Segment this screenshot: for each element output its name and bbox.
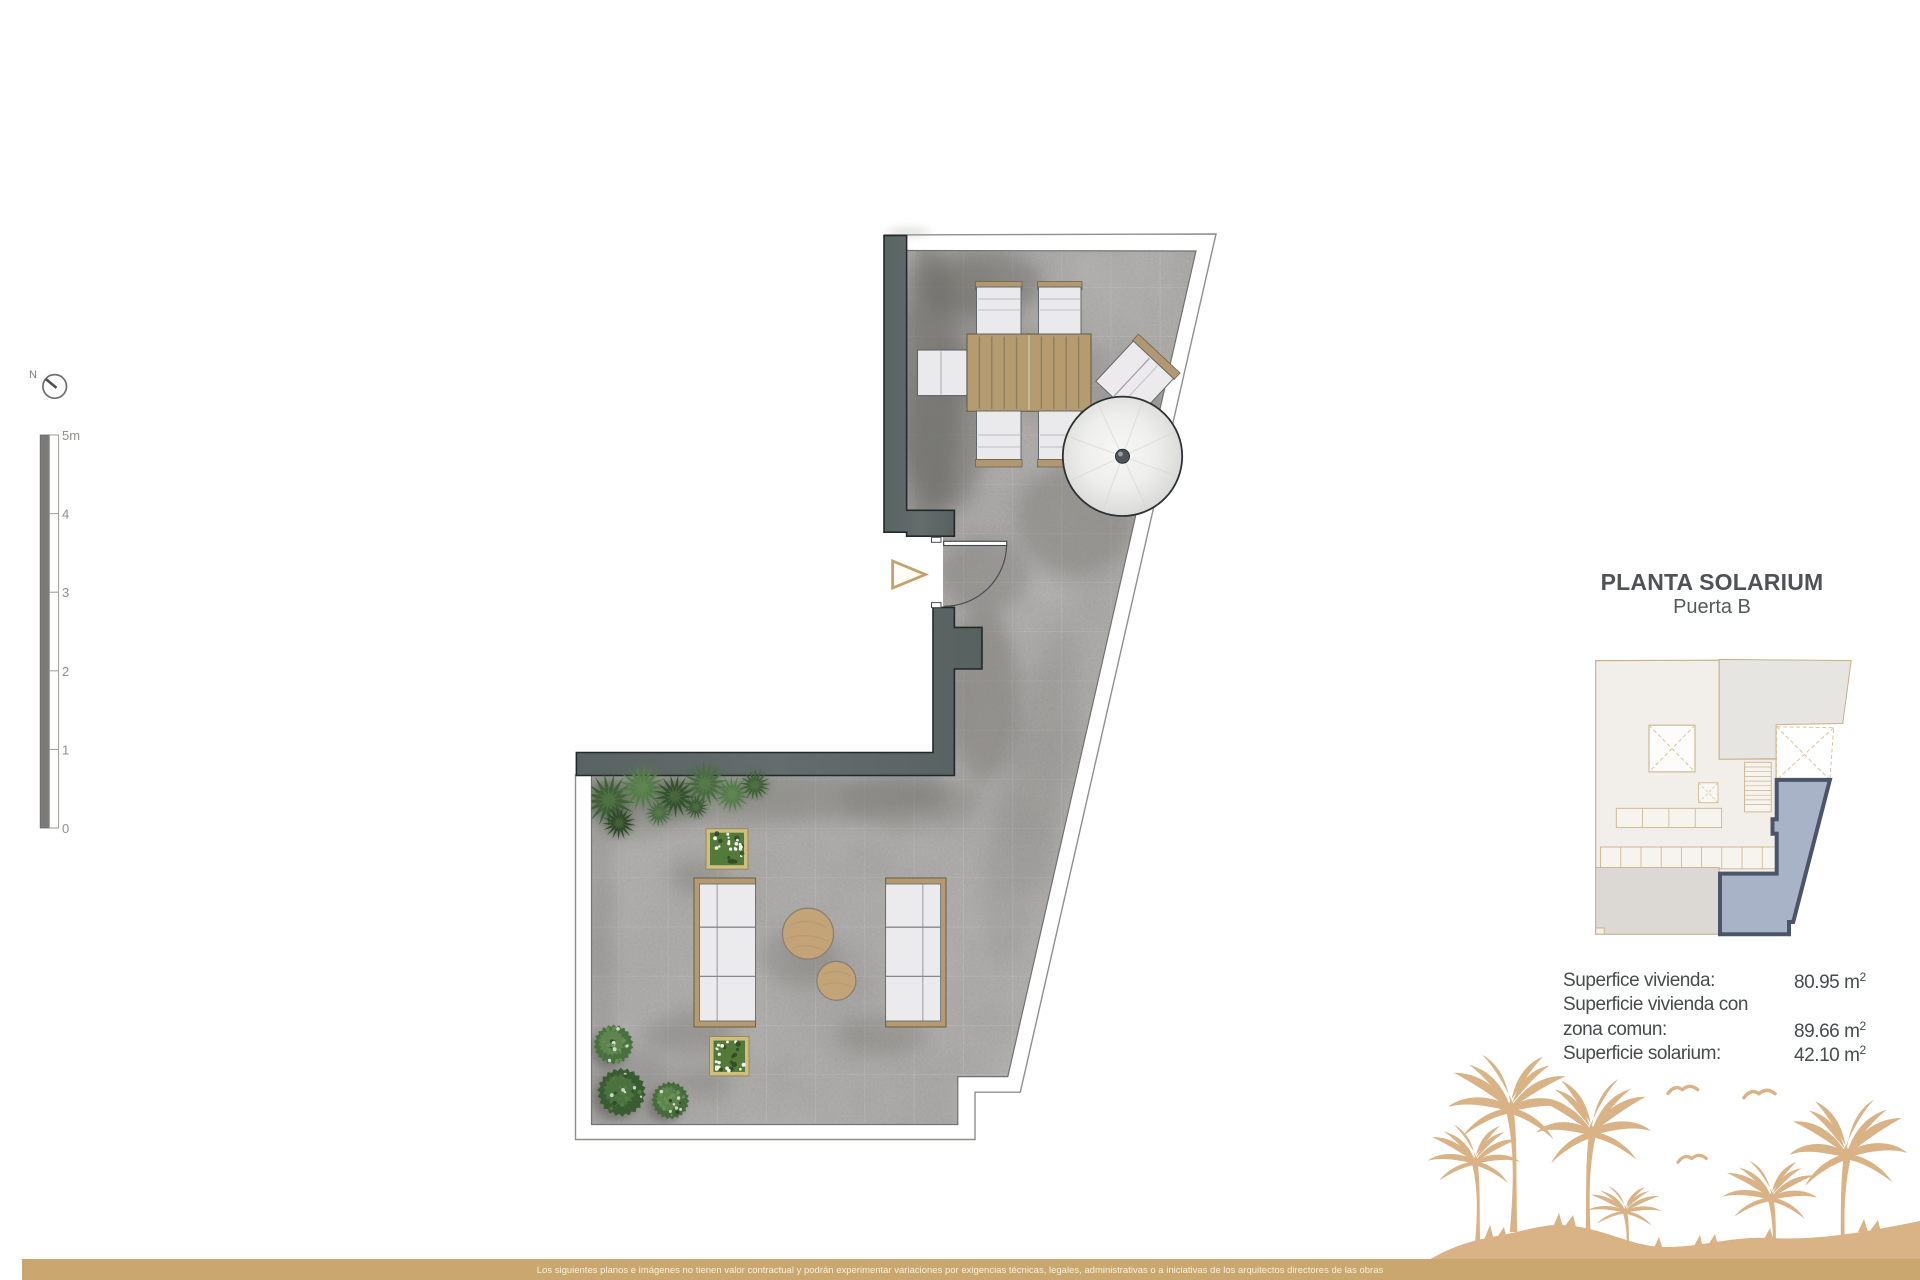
svg-text:4: 4 bbox=[62, 507, 69, 522]
svg-text:5m: 5m bbox=[62, 428, 80, 443]
svg-text:0: 0 bbox=[62, 821, 69, 836]
svg-text:3: 3 bbox=[62, 585, 69, 600]
svg-text:N: N bbox=[29, 369, 37, 381]
svg-text:2: 2 bbox=[62, 664, 69, 679]
svg-text:1: 1 bbox=[62, 742, 69, 757]
